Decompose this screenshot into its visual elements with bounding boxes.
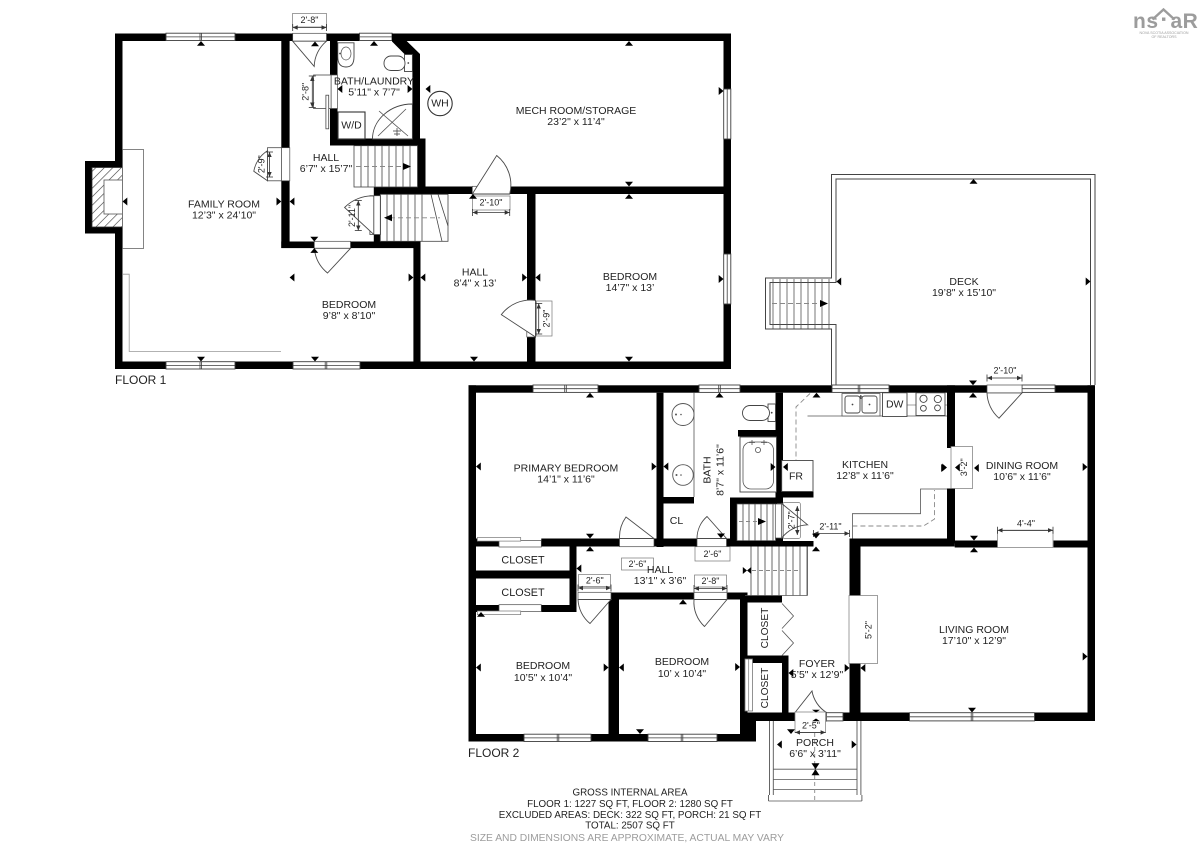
svg-text:12’3" x 24’10": 12’3" x 24’10" (192, 209, 256, 221)
svg-text:2'-11": 2'-11" (347, 205, 357, 227)
svg-text:2'-7": 2'-7" (786, 511, 796, 529)
svg-text:10’6" x 11’6": 10’6" x 11’6" (993, 471, 1051, 483)
svg-text:3'-2": 3'-2" (959, 458, 969, 476)
svg-text:WH: WH (431, 98, 449, 110)
svg-text:FLOOR 1: FLOOR 1 (115, 373, 167, 387)
svg-text:ns: ns (1133, 10, 1159, 33)
svg-text:2'-8": 2'-8" (301, 15, 319, 25)
svg-text:8’7" x 11’6": 8’7" x 11’6" (715, 444, 727, 496)
svg-text:5’11" x 7’7": 5’11" x 7’7" (348, 86, 400, 98)
svg-text:2'-5": 2'-5" (802, 721, 820, 731)
svg-text:DECK: DECK (949, 276, 978, 288)
svg-text:2'-11": 2'-11" (819, 522, 841, 532)
svg-text:CLOSET: CLOSET (760, 668, 771, 709)
svg-text:W/D: W/D (341, 120, 362, 132)
svg-text:FLOOR 1: 1227 SQ FT, FLOOR 2:: FLOOR 1: 1227 SQ FT, FLOOR 2: 1280 SQ FT (527, 799, 733, 810)
svg-text:FLOOR 2: FLOOR 2 (468, 746, 520, 760)
svg-text:SIZE AND DIMENSIONS ARE APPROX: SIZE AND DIMENSIONS ARE APPROXIMATE, ACT… (470, 833, 784, 844)
svg-text:BATH: BATH (702, 456, 714, 483)
svg-text:2'-8": 2'-8" (301, 83, 311, 101)
svg-text:TOTAL: 2507 SQ FT: TOTAL: 2507 SQ FT (585, 821, 674, 832)
svg-text:2'-10": 2'-10" (994, 366, 1017, 376)
svg-text:6’7" x 15’7": 6’7" x 15’7" (300, 163, 353, 175)
svg-text:aR: aR (1171, 10, 1199, 33)
svg-text:CLOSET: CLOSET (501, 555, 545, 567)
svg-text:EXCLUDED AREAS: DECK: 322 SQ F: EXCLUDED AREAS: DECK: 322 SQ FT, PORCH: … (499, 810, 761, 821)
svg-text:OF REALTORS: OF REALTORS (1151, 35, 1177, 39)
svg-text:CLOSET: CLOSET (760, 608, 771, 649)
svg-text:14’1" x 11’6": 14’1" x 11’6" (537, 474, 595, 486)
svg-text:9’8" x 8’10": 9’8" x 8’10" (323, 310, 376, 322)
svg-text:4'-4": 4'-4" (1017, 519, 1035, 529)
svg-text:14’7" x 13’: 14’7" x 13’ (606, 282, 655, 294)
svg-text:5'-2": 5'-2" (863, 621, 873, 639)
svg-text:2'-8": 2'-8" (702, 576, 720, 586)
svg-text:2'-6": 2'-6" (586, 576, 604, 586)
svg-text:17’10" x 12’9": 17’10" x 12’9" (942, 635, 1006, 647)
svg-text:2'-9": 2'-9" (542, 310, 552, 328)
svg-text:2'-6": 2'-6" (704, 549, 722, 559)
svg-text:DW: DW (886, 399, 904, 411)
svg-text:BEDROOM: BEDROOM (516, 660, 570, 672)
svg-text:5’5" x 12’9": 5’5" x 12’9" (791, 669, 844, 681)
svg-text:CL: CL (670, 515, 684, 527)
svg-text:BEDROOM: BEDROOM (655, 656, 709, 668)
svg-text:10’5" x 10’4": 10’5" x 10’4" (514, 672, 573, 684)
svg-text:CLOSET: CLOSET (501, 587, 545, 599)
svg-text:10’ x 10’4": 10’ x 10’4" (658, 668, 707, 680)
svg-text:GROSS INTERNAL AREA: GROSS INTERNAL AREA (572, 788, 688, 799)
svg-text:19’8" x 15’10": 19’8" x 15’10" (932, 287, 996, 299)
svg-text:13’1" x 3’6": 13’1" x 3’6" (634, 575, 687, 587)
svg-text:FR: FR (789, 471, 803, 483)
svg-text:6’6" x 3’11": 6’6" x 3’11" (789, 748, 841, 760)
svg-text:8’4" x 13’: 8’4" x 13’ (454, 277, 497, 289)
svg-text:2'-6": 2'-6" (629, 559, 647, 569)
svg-text:2'-10": 2'-10" (480, 198, 503, 208)
svg-text:12’8" x 11’6": 12’8" x 11’6" (836, 470, 894, 482)
svg-text:23’2" x 11’4": 23’2" x 11’4" (547, 116, 605, 128)
svg-text:LIVING ROOM: LIVING ROOM (939, 624, 1009, 636)
svg-text:2'-9": 2'-9" (257, 155, 267, 173)
